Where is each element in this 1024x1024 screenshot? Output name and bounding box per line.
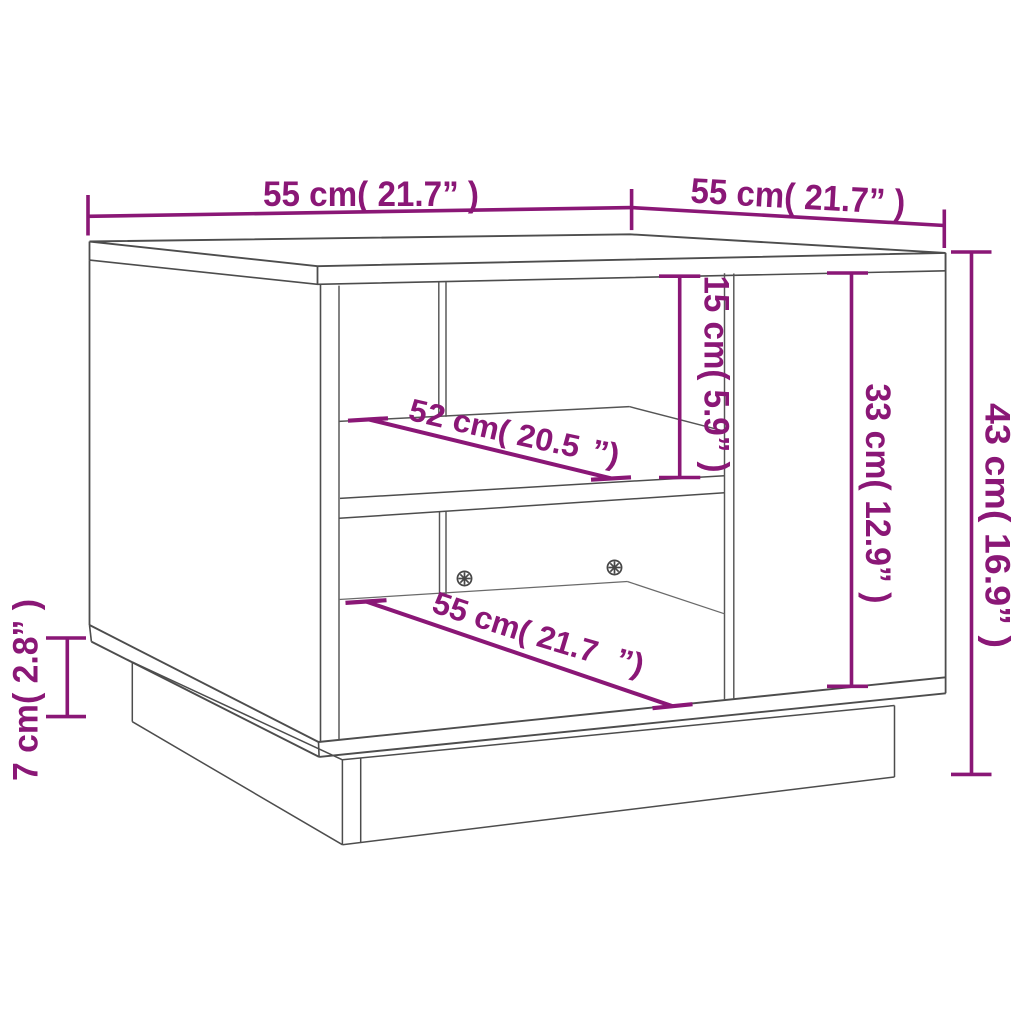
svg-text:55 cm( 21.7” ): 55 cm( 21.7” ): [263, 174, 479, 214]
svg-text:15 cm( 5.9” ): 15 cm( 5.9” ): [697, 276, 737, 473]
svg-text:7 cm( 2.8” ): 7 cm( 2.8” ): [6, 599, 46, 781]
svg-text:33 cm( 12.9” ): 33 cm( 12.9” ): [858, 384, 898, 604]
svg-text:43 cm( 16.9” ): 43 cm( 16.9” ): [978, 403, 1018, 648]
